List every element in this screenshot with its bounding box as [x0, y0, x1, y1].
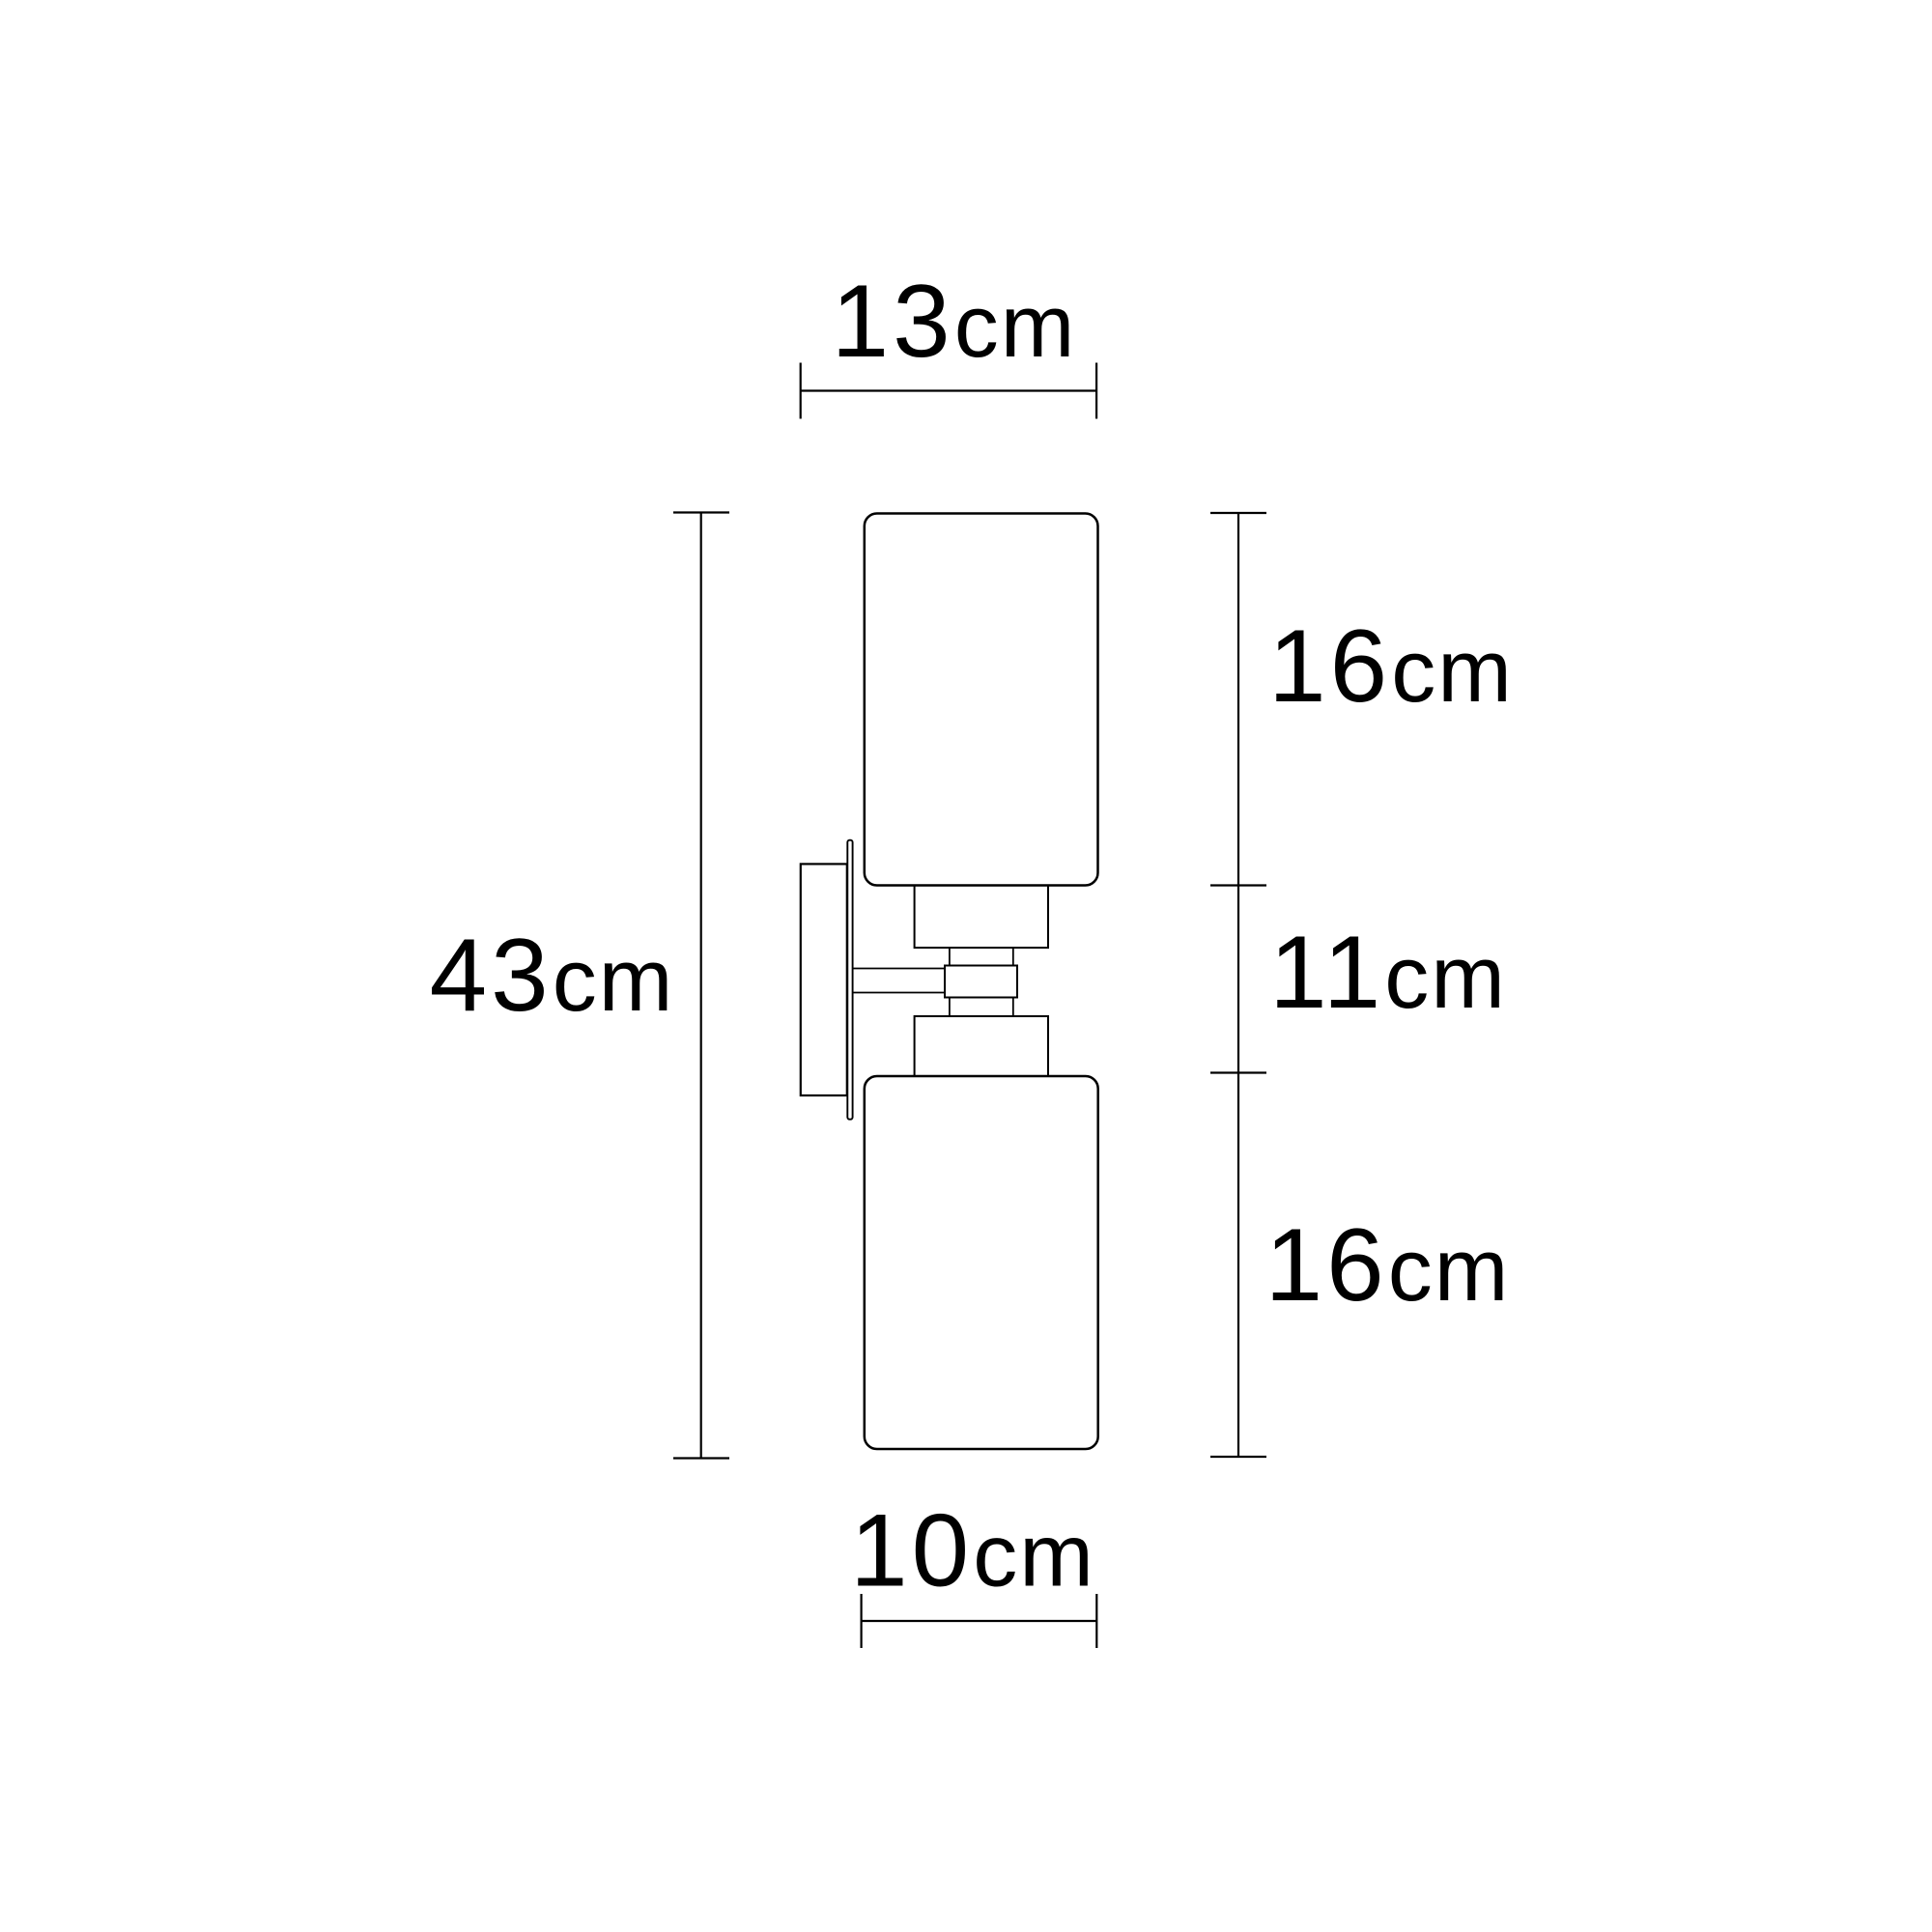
svg-text:16cm: 16cm	[1268, 608, 1514, 724]
svg-text:16cm: 16cm	[1265, 1207, 1511, 1322]
svg-text:10cm: 10cm	[850, 1492, 1095, 1608]
svg-text:11cm: 11cm	[1269, 914, 1507, 1030]
svg-text:43cm: 43cm	[430, 917, 675, 1033]
svg-text:13cm: 13cm	[832, 263, 1077, 379]
